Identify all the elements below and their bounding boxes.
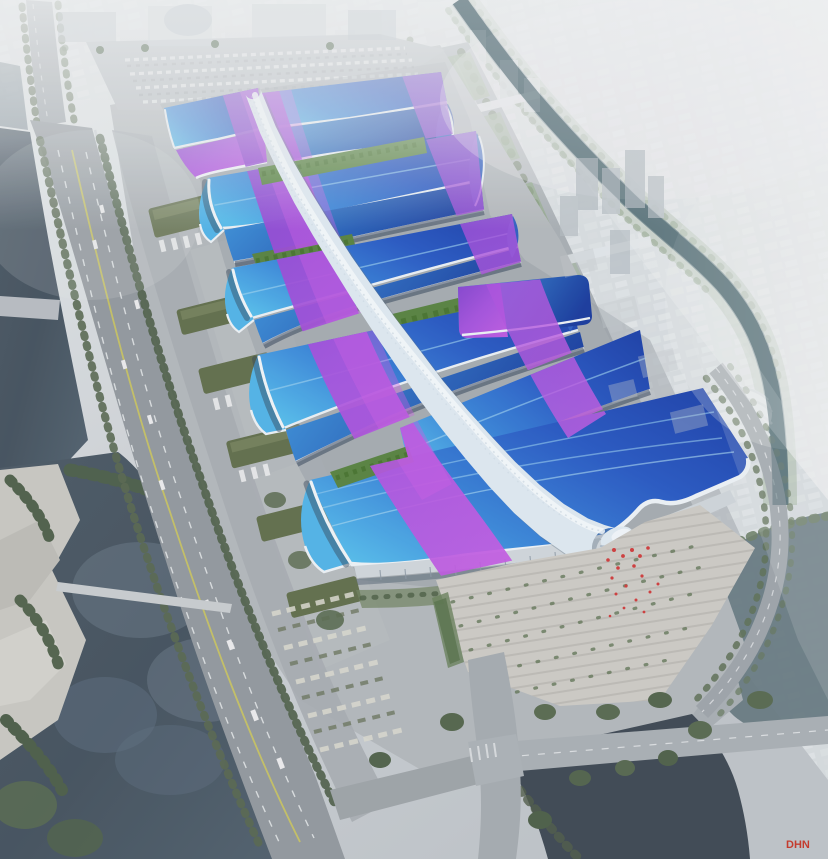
svg-text:DHN: DHN — [786, 839, 810, 851]
